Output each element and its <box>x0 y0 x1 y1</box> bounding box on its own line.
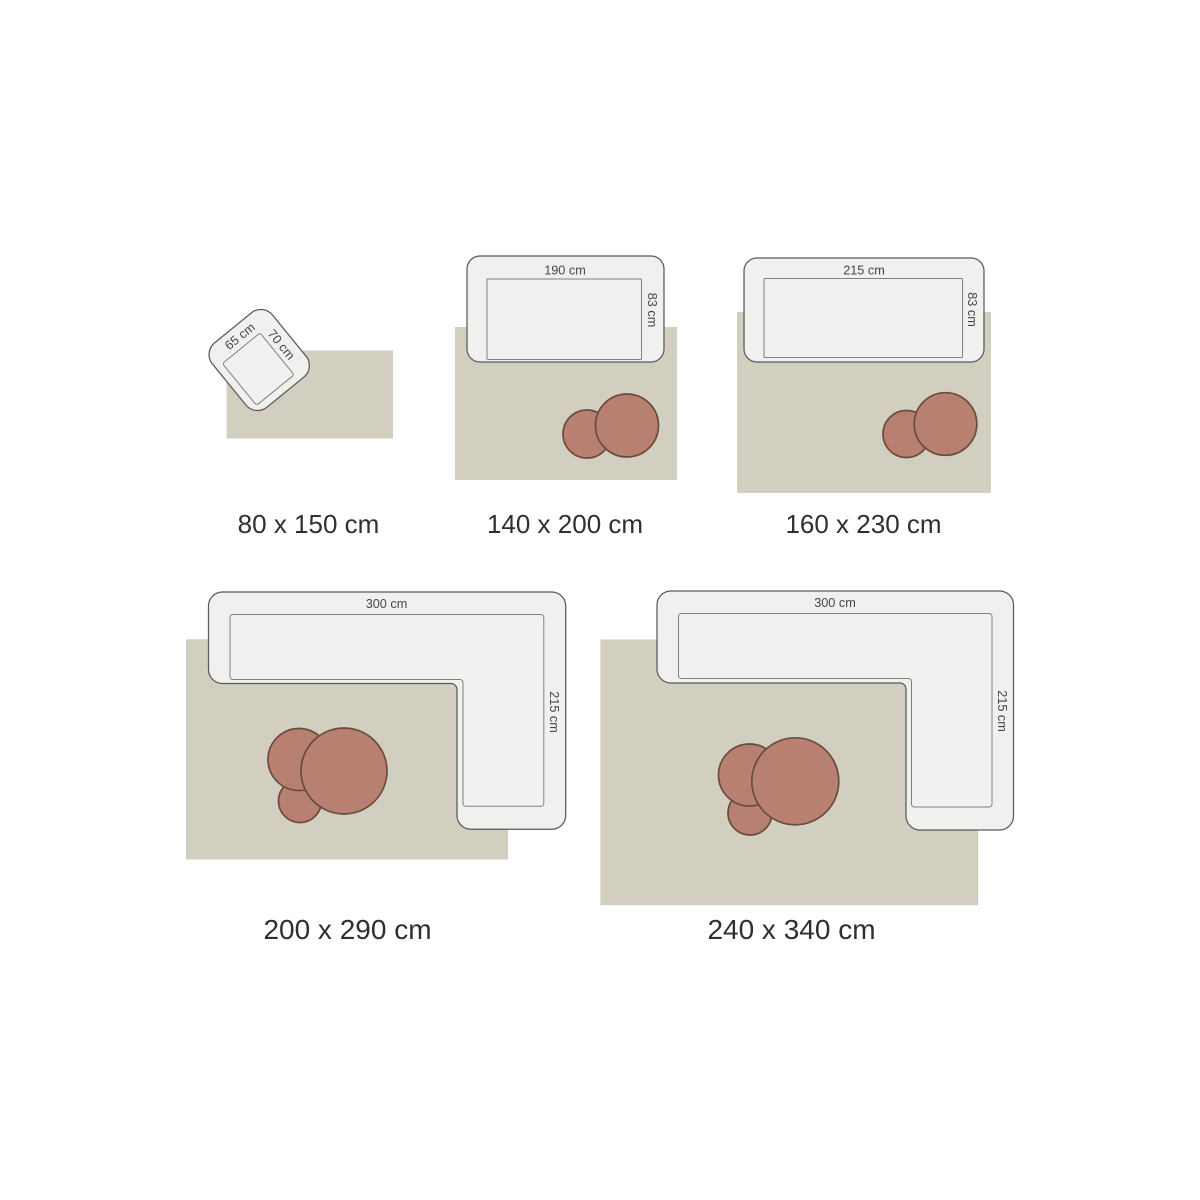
svg-text:140 x 200 cm: 140 x 200 cm <box>487 509 643 539</box>
svg-text:215 cm: 215 cm <box>995 690 1009 732</box>
svg-text:300 cm: 300 cm <box>814 596 856 610</box>
svg-text:70 cm: 70 cm <box>265 327 298 363</box>
svg-text:80 x 150 cm: 80 x 150 cm <box>238 509 380 539</box>
svg-text:83 cm: 83 cm <box>965 292 979 327</box>
svg-text:190 cm: 190 cm <box>544 264 586 278</box>
svg-text:65 cm: 65 cm <box>222 320 258 353</box>
svg-text:240 x 340 cm: 240 x 340 cm <box>707 914 875 945</box>
svg-text:200 x 290 cm: 200 x 290 cm <box>263 914 431 945</box>
svg-text:215 cm: 215 cm <box>547 691 561 733</box>
svg-text:215 cm: 215 cm <box>843 264 885 278</box>
svg-text:300 cm: 300 cm <box>366 597 408 611</box>
svg-text:83 cm: 83 cm <box>645 293 659 328</box>
svg-text:160 x 230 cm: 160 x 230 cm <box>785 509 941 539</box>
